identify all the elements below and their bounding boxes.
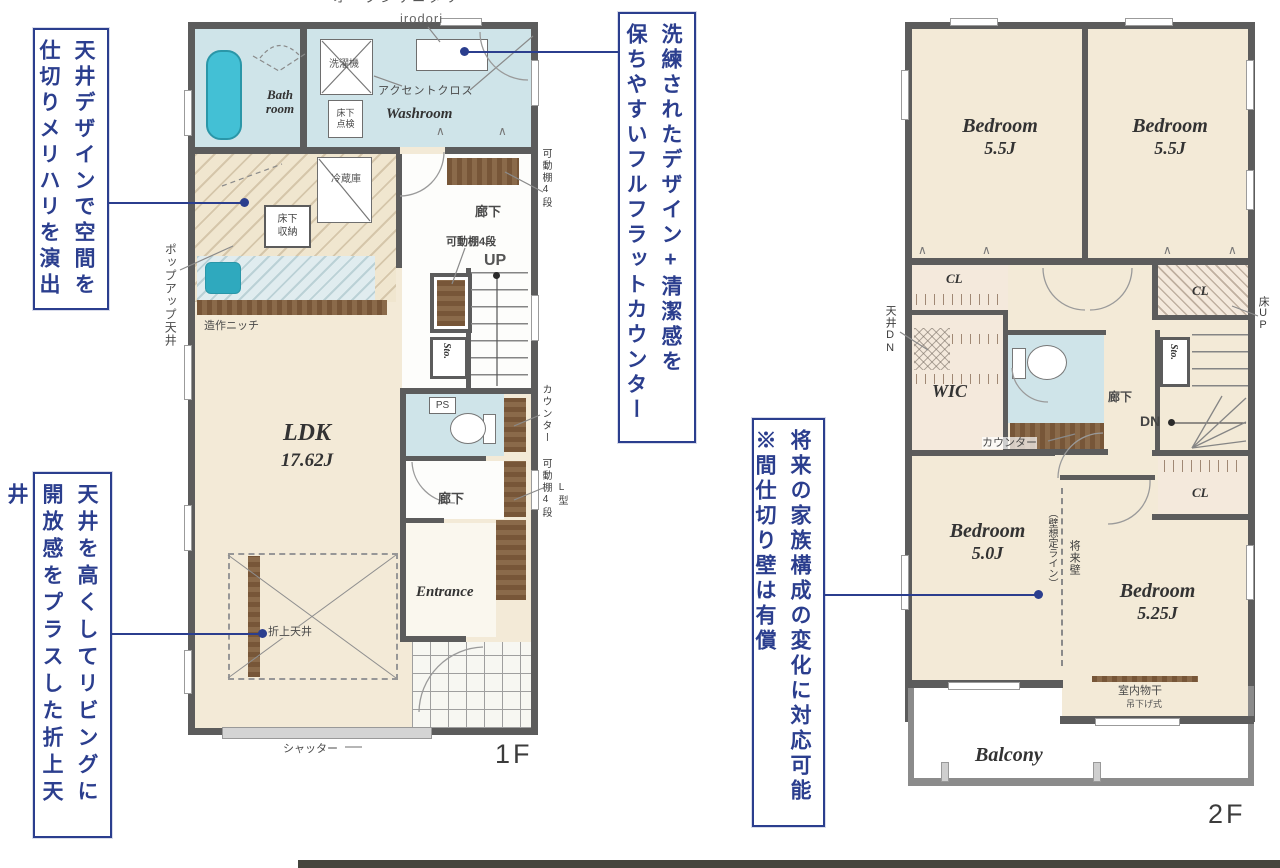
counter-2f-label: カウンター (982, 437, 1037, 449)
counter-by-toilet (504, 398, 526, 452)
future-wall-line (1061, 488, 1063, 666)
washroom-label: Washroom (386, 106, 452, 123)
underfloor-check-line2: 点検 (336, 119, 354, 129)
corridor-1f-lower (406, 461, 504, 519)
folded-ceiling-label: 折上天井 (266, 626, 314, 638)
shelf-4-corridor-label: 可動棚4段 (446, 236, 496, 248)
bedroom-55-left-label: Bedroom 5.5J (940, 115, 1060, 159)
annotation-full-flat-counter: 洗練されたデザイン+清潔感を 保ちやすいフルフラットカウンター (618, 12, 696, 443)
underfloor-storage-box: 床下 収納 (264, 205, 311, 248)
annotation-line: 天井デザインで空間を (66, 39, 101, 299)
annotation-line: ※間仕切り壁は有償 (747, 429, 782, 816)
bedroom-size: 5.0J (972, 543, 1004, 563)
annotation-line: 将来の家族構成の変化に対応可能 (782, 429, 817, 816)
fridge-label: 冷蔵庫 (331, 174, 361, 185)
underfloor-check-line1: 床下 (336, 108, 354, 118)
storage-1f-label: Sto. (441, 343, 452, 359)
bedroom-name: Bedroom (1120, 580, 1196, 602)
door-mark: ∧ (982, 243, 991, 257)
shutter-bar (222, 727, 432, 739)
door-mark: ∧ (1228, 243, 1237, 257)
up-dot (493, 272, 500, 279)
bedroom-name: Bedroom (950, 520, 1026, 542)
entrance-floor (406, 523, 496, 637)
counter-1f-label: カウンター (540, 384, 551, 446)
floor-plan-page: Bath room 洗濯機 床下 点検 アクセントクロス Washroom オー… (0, 0, 1280, 868)
ps-box: PS (429, 397, 456, 414)
ldk-label: LDK 17.62J (252, 420, 362, 473)
corridor-1f-upper-label: 廊下 (475, 205, 501, 219)
annotation-folded-ceiling: 天井を高くしてリビングに 開放感をプラスした折上天井 (33, 472, 112, 838)
wall-line-label: （壁想定ライン） (1046, 508, 1057, 638)
annotation-line: 仕切りメリハリを演出 (31, 39, 66, 299)
shelf-4-right-label: 可動棚4段 (540, 148, 551, 220)
bedroom-size: 5.5J (984, 138, 1016, 158)
pillar (248, 556, 260, 677)
shelf-upper (447, 158, 519, 185)
corridor-2f-label: 廊下 (1108, 391, 1132, 404)
annotation-ceiling-design: 天井デザインで空間を 仕切りメリハリを演出 (33, 28, 109, 310)
balcony-post (1093, 762, 1101, 782)
bedroom-name: Bedroom (1132, 115, 1208, 137)
bedroom-525-label: Bedroom 5.25J (1095, 580, 1220, 624)
irodori-label: irodori (400, 12, 443, 26)
door-mark: ∧ (918, 243, 927, 257)
dn-dot (1168, 419, 1175, 426)
floor-up-label: 床UP (1257, 296, 1269, 348)
annotation-line: 保ちやすいフルフラットカウンター (618, 23, 653, 432)
closet-right-top-label: CL (1192, 284, 1209, 298)
bedroom-50-label: Bedroom 5.0J (925, 520, 1050, 564)
balcony-label: Balcony (975, 744, 1043, 766)
annotation-line: 天井を高くしてリビングに (69, 483, 104, 827)
bedroom-55-right-label: Bedroom 5.5J (1110, 115, 1230, 159)
underfloor-storage-line1: 床下 (278, 214, 298, 225)
drying-type-label: 吊下げ式 (1126, 700, 1162, 710)
ldk-name: LDK (283, 420, 331, 446)
l-shelf-upper (504, 461, 526, 517)
accent-cross-label: アクセントクロス (378, 85, 473, 97)
fridge-space (317, 157, 372, 223)
annotation-partition-wall: 将来の家族構成の変化に対応可能 ※間仕切り壁は有償 (752, 418, 825, 827)
ceiling-dn-label: 天井DN (884, 305, 896, 379)
floor-1f-label: 1F (495, 740, 533, 770)
floor-2f-label: 2F (1208, 800, 1246, 830)
annotation-line: 洗練されたデザイン+清潔感を (653, 23, 688, 432)
closet-1f-shelf (437, 280, 465, 326)
l-shape-label: L型 (556, 482, 567, 512)
storage-2f-label: Sto. (1168, 344, 1179, 360)
shelf-4-entrance-label: 可動棚4段 (540, 458, 551, 534)
closet-right-bottom-label: CL (1192, 486, 1209, 500)
annotation-line: 開放感をプラスした折上天井 (0, 483, 69, 827)
ldk-size: 17.62J (281, 450, 333, 471)
bathtub (206, 50, 242, 140)
washbasin-counter (416, 39, 488, 71)
door-mark: ∧ (436, 124, 445, 138)
indoor-drying-bar (1092, 676, 1198, 682)
niche-label: 造作ニッチ (204, 320, 259, 332)
future-wall-label: 将来壁 (1068, 540, 1080, 598)
underfloor-storage-line2: 収納 (278, 227, 298, 238)
bathroom-label-line2: room (266, 101, 294, 116)
l-shelf-lower (496, 520, 526, 600)
stairs-2f (1192, 334, 1248, 396)
door-mark: ∧ (1163, 243, 1172, 257)
entrance-label: Entrance (416, 584, 474, 601)
toilet-2f-bowl (1027, 345, 1067, 380)
open-sanitary-label: オープンサニタリー (333, 0, 476, 5)
indoor-drying-label: 室内物干 (1118, 685, 1162, 697)
bedroom-size: 5.5J (1154, 138, 1186, 158)
popup-ceiling-label: ポップアップ天井 (163, 243, 176, 383)
bedroom-size: 5.25J (1137, 603, 1178, 623)
balcony-post (941, 762, 949, 782)
underfloor-check-box: 床下 点検 (328, 100, 363, 138)
toilet-2f-tank (1012, 348, 1026, 379)
wic-label: WIC (932, 382, 967, 402)
page-edge (298, 860, 1280, 868)
door-mark: ∧ (498, 124, 507, 138)
bedroom-name: Bedroom (962, 115, 1038, 137)
bathroom-label: Bath room (258, 88, 302, 117)
corridor-1f-lower-label: 廊下 (438, 492, 464, 506)
up-label: UP (484, 252, 506, 270)
ps-label: PS (436, 400, 449, 411)
stairs-1f (471, 272, 528, 388)
bathroom-label-line1: Bath (267, 87, 293, 102)
dn-label: DN (1140, 414, 1160, 429)
toilet-1f-bowl (450, 413, 486, 444)
washer-label: 洗濯機 (329, 59, 359, 70)
shutter-label: シャッター (283, 743, 338, 755)
niche-counter (197, 300, 387, 315)
closet-left-label: CL (946, 272, 963, 286)
porch (412, 642, 531, 728)
kitchen-sink (205, 262, 241, 294)
